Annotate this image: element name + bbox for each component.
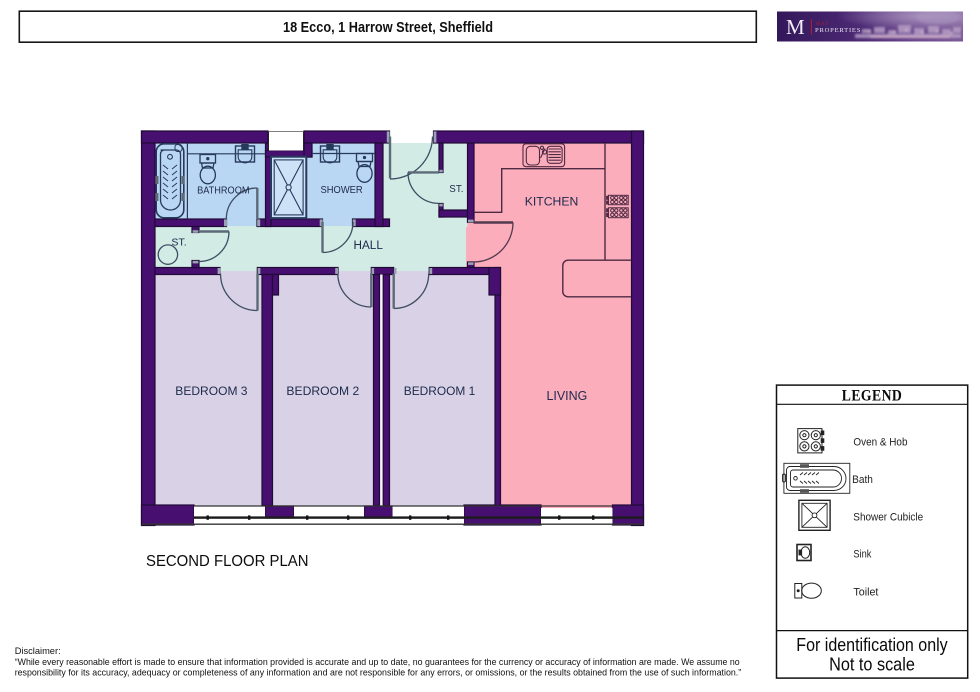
svg-text:M: M xyxy=(786,15,805,39)
svg-text:Bath: Bath xyxy=(852,474,873,486)
svg-text:SHOWER: SHOWER xyxy=(321,185,363,196)
svg-text:LIVING: LIVING xyxy=(547,388,588,403)
svg-text:PROPERTIES: PROPERTIES xyxy=(815,27,862,34)
svg-text:BATHROOM: BATHROOM xyxy=(197,186,249,197)
svg-text:Sink: Sink xyxy=(853,549,872,561)
svg-text:HALL: HALL xyxy=(354,238,384,252)
svg-text:BEDROOM 3: BEDROOM 3 xyxy=(175,384,248,398)
svg-text:responsibility for its accurac: responsibility for its accuracy, adequac… xyxy=(15,668,742,678)
svg-text:BEDROOM 2: BEDROOM 2 xyxy=(286,384,359,398)
svg-text:ST.: ST. xyxy=(171,238,186,249)
svg-text:ST.: ST. xyxy=(449,184,463,195)
svg-text:Toilet: Toilet xyxy=(853,587,878,599)
svg-text:Disclaimer:: Disclaimer: xyxy=(15,646,61,656)
svg-text:For identification only: For identification only xyxy=(796,635,947,655)
svg-text:LEGEND: LEGEND xyxy=(842,387,903,404)
svg-text:“While every reasonable effort: “While every reasonable effort is made t… xyxy=(15,657,740,667)
svg-text:KITCHEN: KITCHEN xyxy=(525,194,579,208)
svg-text:Oven & Hob: Oven & Hob xyxy=(853,436,907,448)
svg-text:18 Ecco, 1 Harrow Street, Shef: 18 Ecco, 1 Harrow Street, Sheffield xyxy=(283,20,493,36)
svg-text:BEDROOM 1: BEDROOM 1 xyxy=(404,384,476,398)
svg-text:Shower Cubicle: Shower Cubicle xyxy=(853,511,923,523)
svg-text:Not to scale: Not to scale xyxy=(829,654,915,674)
svg-text:SECOND FLOOR PLAN: SECOND FLOOR PLAN xyxy=(146,553,309,570)
